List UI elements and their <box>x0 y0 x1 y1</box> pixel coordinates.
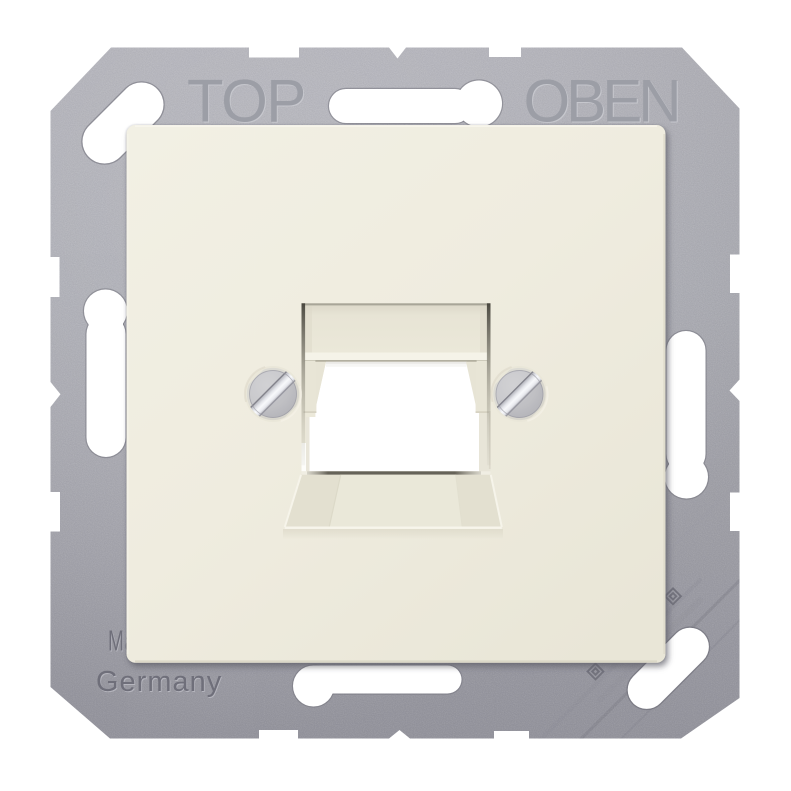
svg-text:TOP: TOP <box>187 68 305 135</box>
svg-text:Germany: Germany <box>96 666 222 698</box>
svg-text:OBEN: OBEN <box>524 68 678 135</box>
